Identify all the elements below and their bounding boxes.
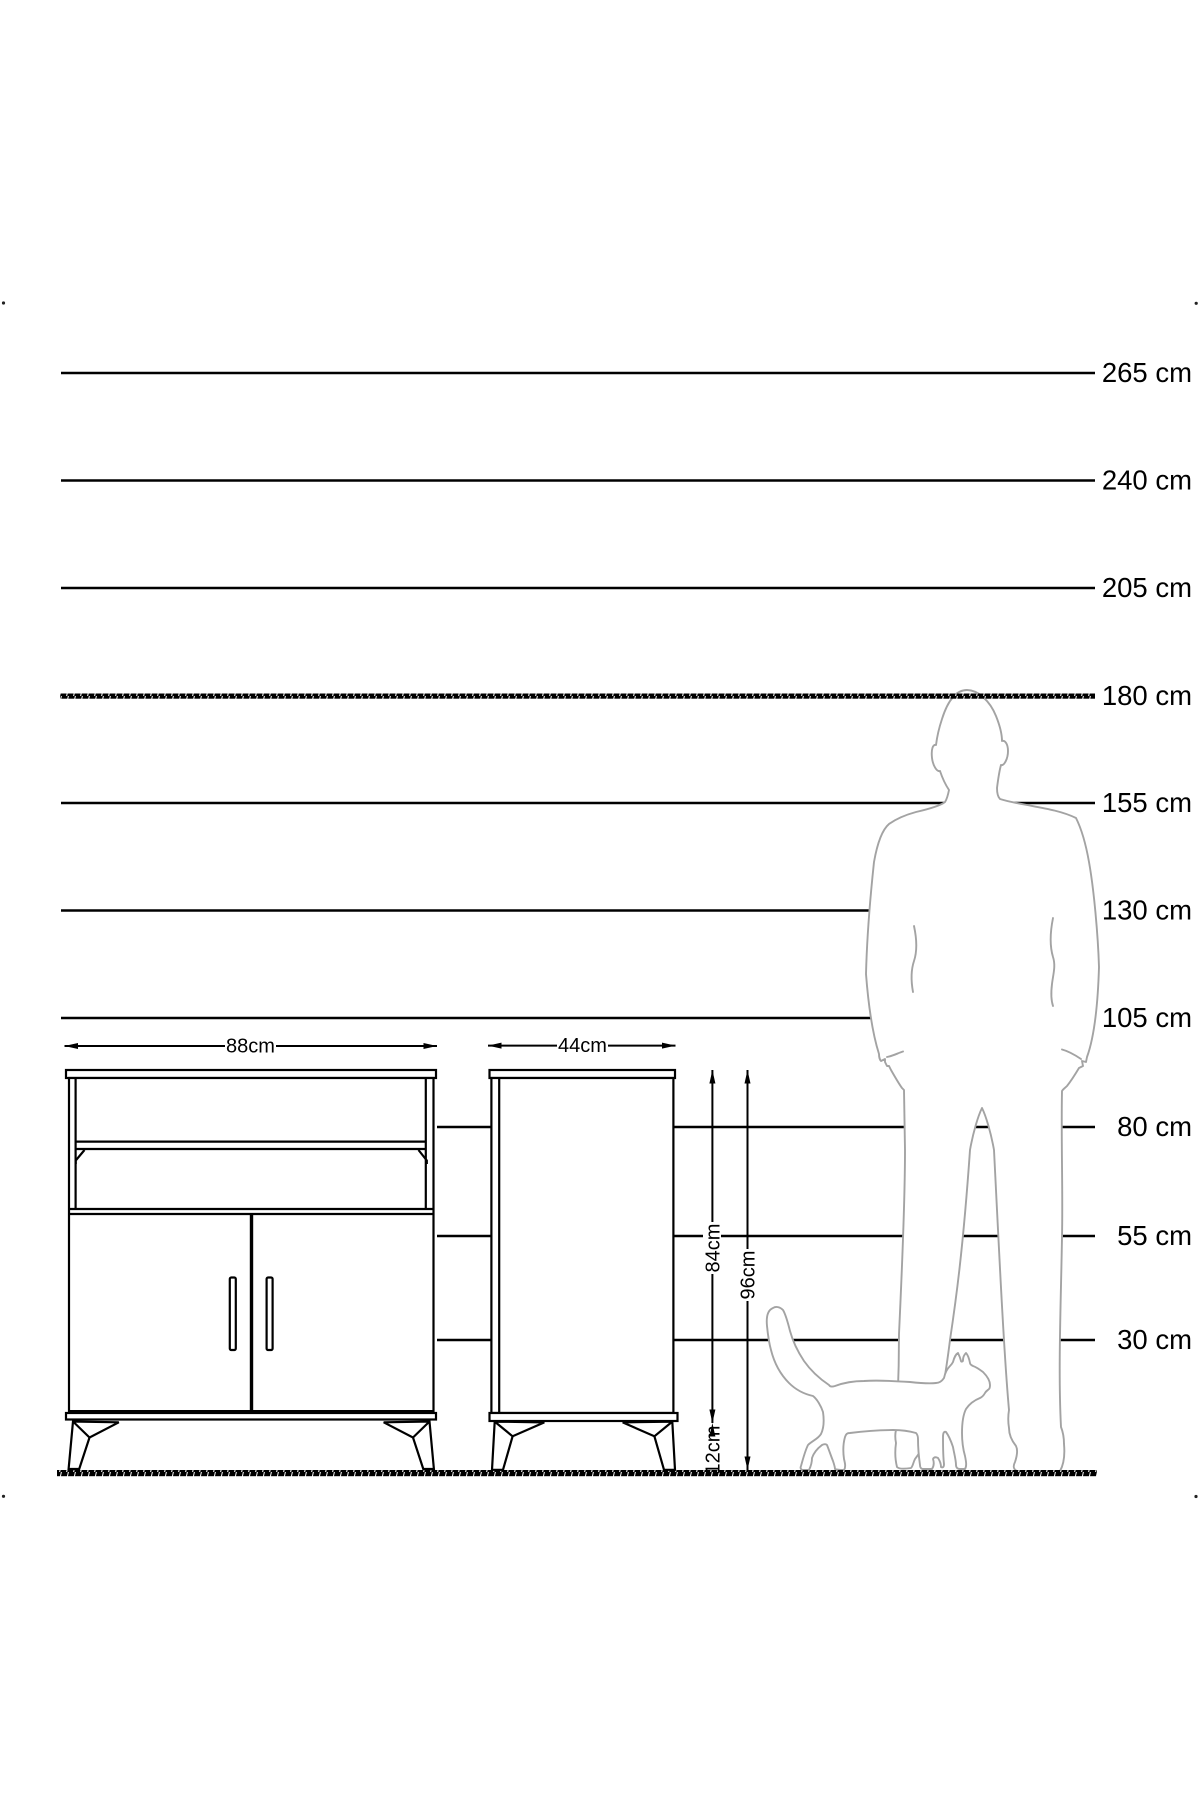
svg-text:180 cm: 180 cm xyxy=(1102,680,1192,711)
svg-text:205 cm: 205 cm xyxy=(1102,572,1192,603)
svg-text:240 cm: 240 cm xyxy=(1102,465,1192,496)
svg-text:130 cm: 130 cm xyxy=(1102,895,1192,926)
svg-text:105 cm: 105 cm xyxy=(1102,1002,1192,1033)
svg-text:265 cm: 265 cm xyxy=(1102,357,1192,388)
svg-text:12cm: 12cm xyxy=(702,1426,724,1475)
svg-text:55 cm: 55 cm xyxy=(1117,1220,1192,1251)
svg-text:155 cm: 155 cm xyxy=(1102,787,1192,818)
svg-text:96cm: 96cm xyxy=(738,1251,760,1300)
svg-text:44cm: 44cm xyxy=(558,1035,607,1057)
svg-text:84cm: 84cm xyxy=(702,1224,724,1273)
svg-text:30 cm: 30 cm xyxy=(1117,1324,1192,1355)
svg-text:80 cm: 80 cm xyxy=(1117,1111,1192,1142)
svg-text:88cm: 88cm xyxy=(226,1036,275,1058)
